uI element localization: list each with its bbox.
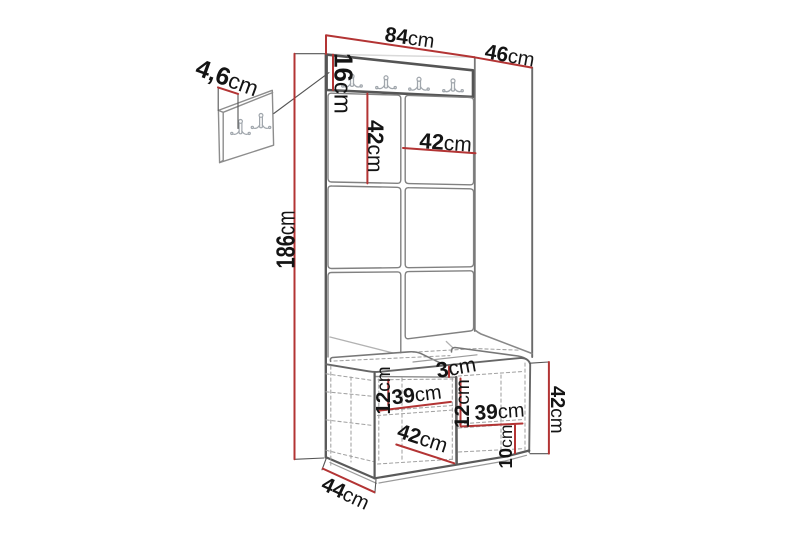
svg-text:10cm: 10cm — [495, 425, 516, 469]
svg-text:4,6cm: 4,6cm — [192, 54, 262, 102]
svg-text:3cm: 3cm — [434, 351, 478, 383]
svg-text:186cm: 186cm — [271, 211, 301, 269]
svg-text:84cm: 84cm — [383, 23, 436, 53]
svg-text:42cm: 42cm — [419, 128, 473, 157]
svg-text:46cm: 46cm — [483, 40, 536, 71]
svg-text:42cm: 42cm — [363, 120, 388, 172]
svg-text:12cm: 12cm — [451, 379, 474, 428]
svg-text:42cm: 42cm — [546, 386, 568, 434]
svg-text:16cm: 16cm — [329, 53, 359, 114]
svg-text:39cm: 39cm — [474, 399, 526, 425]
svg-text:39cm: 39cm — [390, 381, 442, 410]
